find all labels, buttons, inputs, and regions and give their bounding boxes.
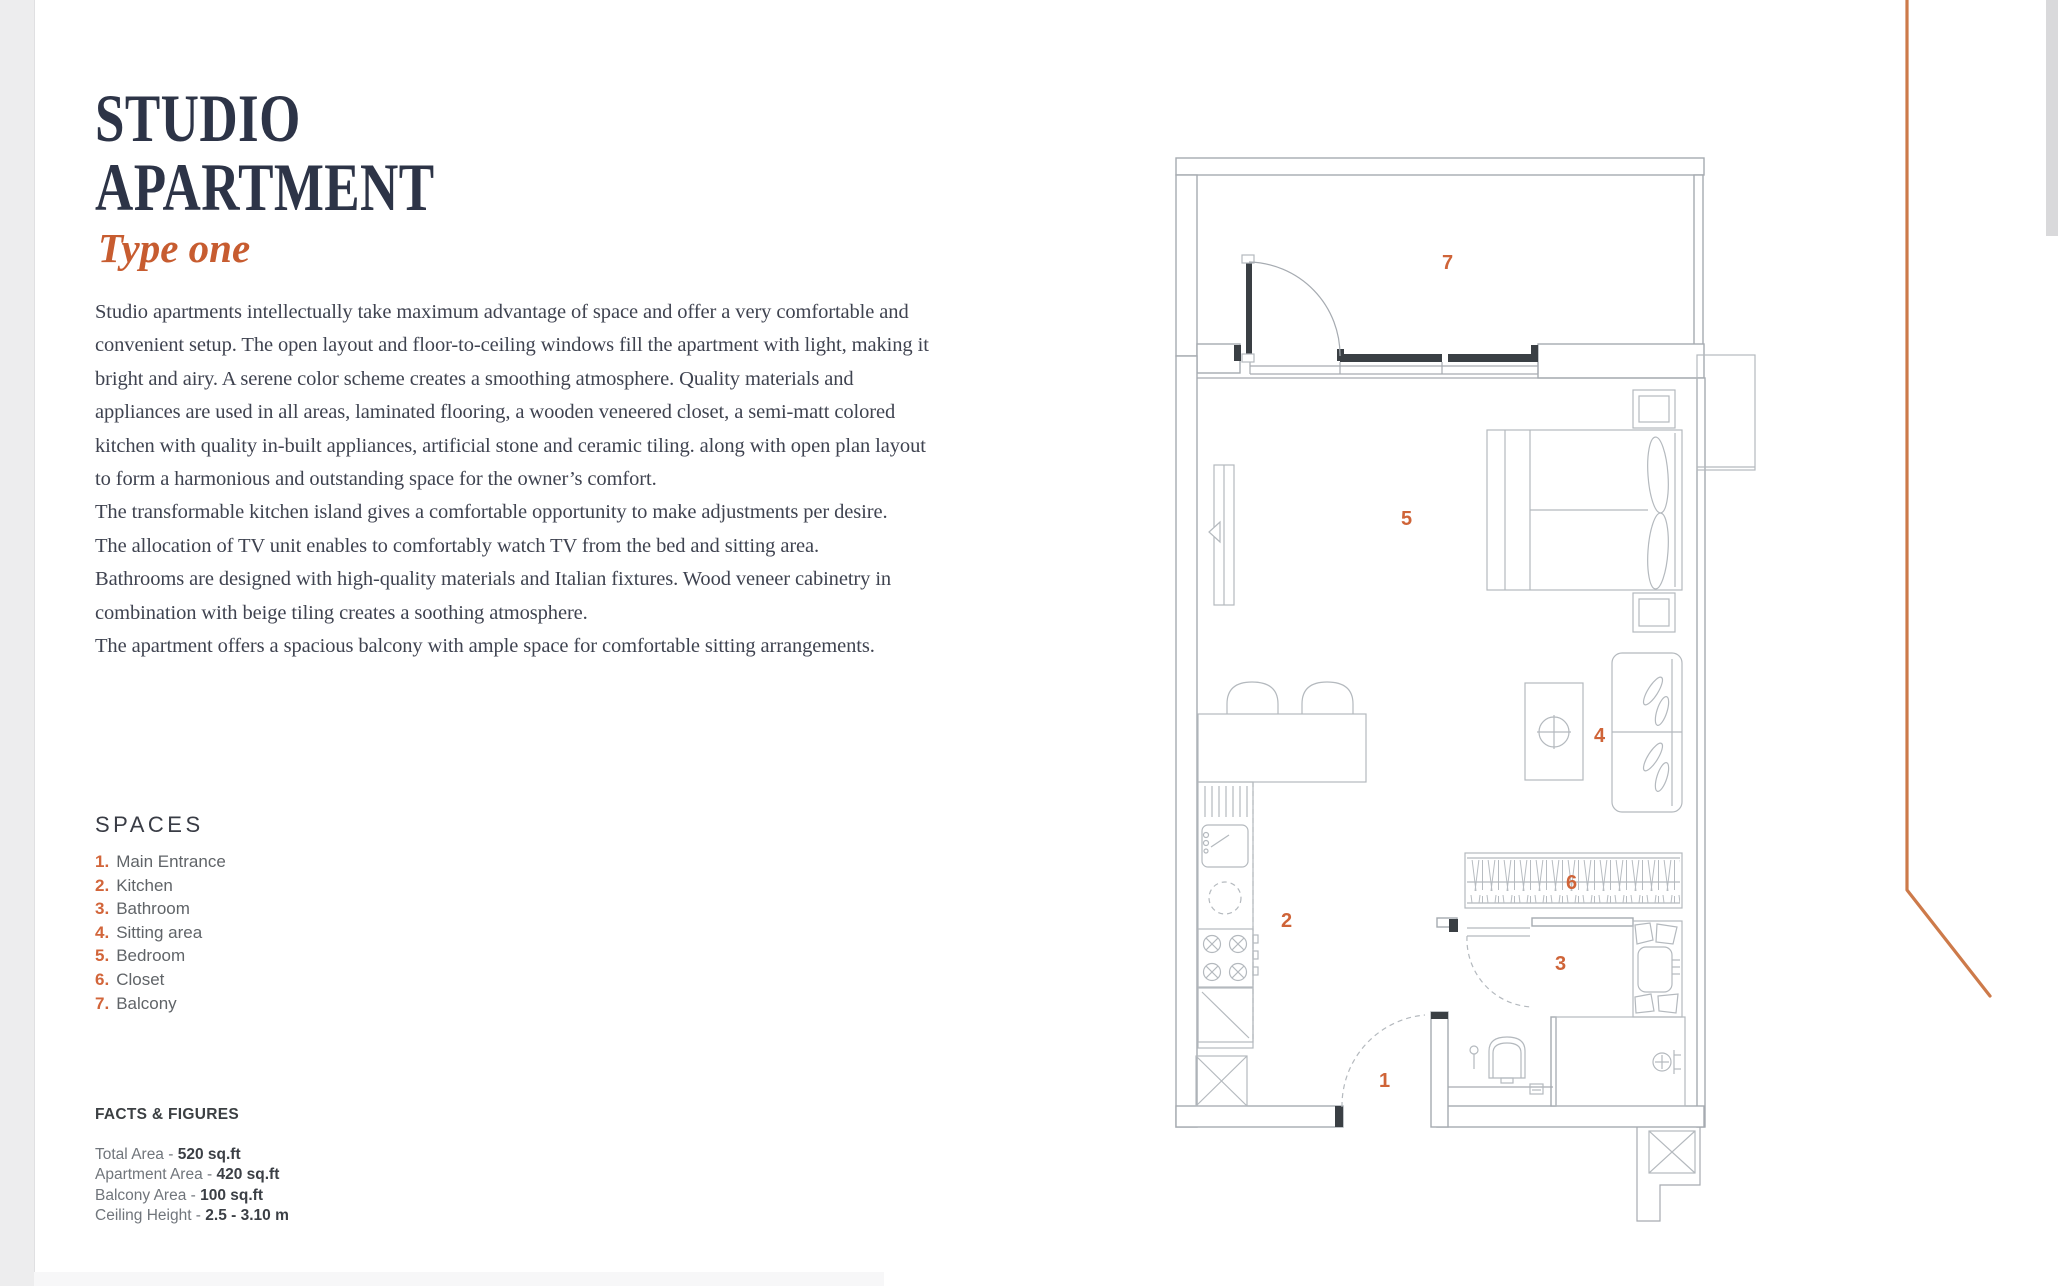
page-subtitle: Type one <box>98 224 250 272</box>
drainboard <box>1205 786 1247 817</box>
description-paragraph: The allocation of TV unit enables to com… <box>95 530 943 563</box>
spaces-list: 1.Main Entrance 2.Kitchen 3.Bathroom 4.S… <box>95 852 226 1017</box>
facts-heading: FACTS & FIGURES <box>95 1106 239 1124</box>
title-line-1: STUDIO <box>95 80 301 156</box>
balcony-door <box>1242 255 1340 362</box>
fact-value: 2.5 - 3.10 m <box>205 1207 289 1224</box>
coffee-table <box>1525 683 1583 780</box>
plan-label-3: 3 <box>1555 953 1566 975</box>
list-item: Total Area - 520 sq.ft <box>95 1146 289 1166</box>
space-label: Bedroom <box>116 946 185 965</box>
description-text: Studio apartments intellectually take ma… <box>95 296 943 663</box>
space-number: 7. <box>95 994 109 1013</box>
plan-label-1: 1 <box>1379 1070 1390 1092</box>
balcony-walls <box>1176 158 1704 356</box>
service-shaft <box>1637 1127 1700 1221</box>
description-paragraph: The transformable kitchen island gives a… <box>95 496 943 529</box>
plan-label-4: 4 <box>1594 725 1606 747</box>
plan-label-7: 7 <box>1442 252 1453 274</box>
list-item: 7.Balcony <box>95 994 226 1018</box>
nightstand-bottom <box>1633 593 1675 632</box>
space-label: Sitting area <box>116 923 202 942</box>
nightstand-top <box>1633 390 1675 428</box>
right-edge-strip <box>2046 0 2058 236</box>
kitchen-shaft <box>1196 1056 1247 1106</box>
space-label: Balcony <box>116 994 176 1013</box>
kitchen-cabinet <box>1198 988 1253 1042</box>
space-number: 5. <box>95 946 109 965</box>
stove <box>1198 929 1258 987</box>
description-paragraph: Studio apartments intellectually take ma… <box>95 296 943 496</box>
page-title: STUDIOAPARTMENT <box>95 84 435 222</box>
space-number: 2. <box>95 876 109 895</box>
space-number: 3. <box>95 899 109 918</box>
decorative-accent-line <box>1890 0 2020 1010</box>
washer-circle <box>1209 882 1241 914</box>
bed <box>1487 430 1682 590</box>
fact-value: 420 sq.ft <box>216 1166 279 1183</box>
brochure-page: STUDIOAPARTMENT Type one Studio apartmen… <box>0 0 2058 1286</box>
bathroom <box>1437 918 1685 1106</box>
floor-plan: 1 2 3 4 5 6 7 <box>1165 145 1775 1235</box>
space-number: 4. <box>95 923 109 942</box>
list-item: 2.Kitchen <box>95 876 226 900</box>
list-item: Balcony Area - 100 sq.ft <box>95 1187 289 1207</box>
list-item: 3.Bathroom <box>95 899 226 923</box>
toilet <box>1470 1037 1543 1094</box>
sofa <box>1612 653 1682 812</box>
list-item: 4.Sitting area <box>95 923 226 947</box>
fact-value: 100 sq.ft <box>200 1187 263 1204</box>
description-paragraph: The apartment offers a spacious balcony … <box>95 630 943 663</box>
facts-list: Total Area - 520 sq.ft Apartment Area - … <box>95 1146 289 1227</box>
fact-value: 520 sq.ft <box>178 1146 241 1163</box>
list-item: 5.Bedroom <box>95 946 226 970</box>
kitchen-sink <box>1202 825 1248 867</box>
fact-label: Ceiling Height - <box>95 1207 205 1224</box>
space-label: Kitchen <box>116 876 173 895</box>
space-label: Main Entrance <box>116 852 226 871</box>
list-item: Ceiling Height - 2.5 - 3.10 m <box>95 1207 289 1227</box>
kitchen <box>1196 682 1366 1106</box>
fact-label: Total Area - <box>95 1146 178 1163</box>
plan-label-6: 6 <box>1566 872 1577 894</box>
left-edge-strip <box>0 0 35 1286</box>
plan-label-2: 2 <box>1281 910 1292 932</box>
bathroom-vanity <box>1633 921 1682 1017</box>
description-paragraph: Bathrooms are designed with high-quality… <box>95 563 943 630</box>
main-entrance-door <box>1342 1012 1448 1127</box>
space-number: 1. <box>95 852 109 871</box>
title-line-2: APARTMENT <box>95 149 435 225</box>
space-number: 6. <box>95 970 109 989</box>
space-label: Bathroom <box>116 899 190 918</box>
list-item: 1.Main Entrance <box>95 852 226 876</box>
spaces-heading: SPACES <box>95 812 204 838</box>
space-label: Closet <box>116 970 164 989</box>
fact-label: Apartment Area - <box>95 1166 216 1183</box>
fact-label: Balcony Area - <box>95 1187 200 1204</box>
list-item: 6.Closet <box>95 970 226 994</box>
window-wall <box>1197 344 1704 378</box>
plan-label-5: 5 <box>1401 508 1412 530</box>
shower-head <box>1653 1050 1681 1074</box>
tv-unit <box>1209 465 1234 605</box>
list-item: Apartment Area - 420 sq.ft <box>95 1166 289 1186</box>
bottom-edge-strip <box>34 1272 884 1286</box>
